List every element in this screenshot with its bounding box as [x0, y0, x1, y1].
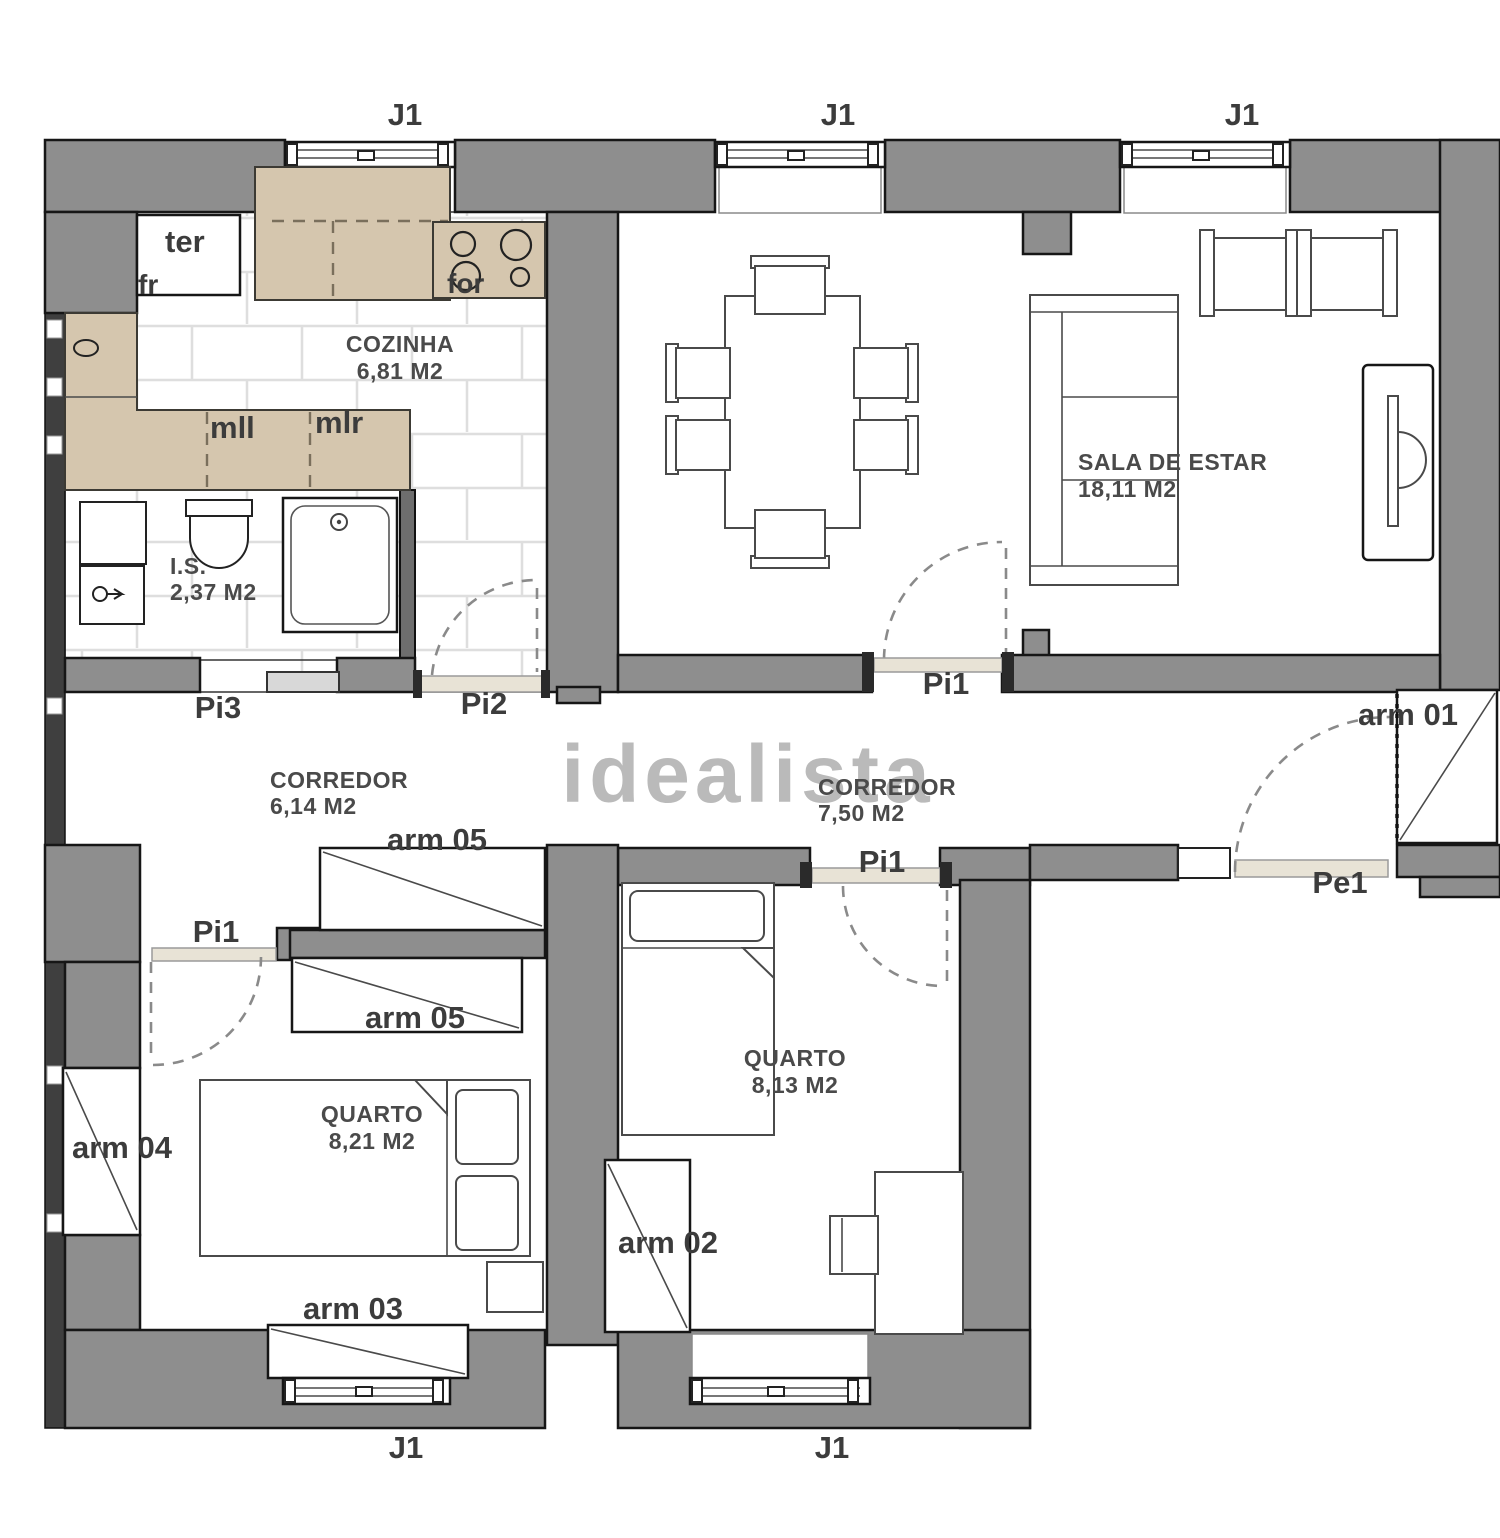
room-label-corridor-a: CORREDOR	[270, 767, 408, 793]
appliance-label-oven: for	[447, 268, 484, 299]
window-label-j1-top-right: J1	[1225, 97, 1259, 132]
appliance-label-dishwasher: mll	[210, 410, 255, 445]
sofa	[1030, 295, 1178, 585]
bedroom-b-door-swing	[843, 886, 947, 986]
window-top-right	[1120, 142, 1290, 213]
wardrobe-label-arm02: arm 02	[618, 1225, 718, 1260]
window-label-j1-bottom-middle: J1	[815, 1430, 849, 1465]
door-label-pi2: Pi2	[461, 686, 508, 721]
living-room: SALA DE ESTAR 18,11 M2	[666, 230, 1433, 692]
window-top-left	[285, 142, 455, 167]
bedroom-a-door-swing	[151, 957, 261, 1065]
door-label-pi1-living: Pi1	[923, 666, 970, 701]
room-area-living: 18,11 M2	[1078, 476, 1177, 502]
appliance-label-fridge: fr	[138, 269, 158, 300]
living-door-swing	[884, 542, 1006, 660]
wardrobe-label-arm01: arm 01	[1358, 697, 1458, 732]
entrance-door-swing	[1235, 717, 1390, 872]
window-bottom-left	[283, 1378, 450, 1404]
window-label-j1-top-middle: J1	[821, 97, 855, 132]
door-label-pi1-bedroom-a: Pi1	[193, 914, 240, 949]
appliance-label-water-heater: ter	[165, 224, 205, 259]
room-label-bathroom: I.S.	[170, 553, 207, 579]
room-area-corridor-b: 7,50 M2	[818, 800, 905, 826]
nightstand	[487, 1262, 543, 1312]
room-label-corridor-b: CORREDOR	[818, 774, 956, 800]
door-label-pi1-bedroom-b: Pi1	[859, 844, 906, 879]
room-label-bedroom-a: QUARTO	[321, 1101, 423, 1127]
door-label-pe1: Pe1	[1312, 865, 1367, 900]
washbasin-icon	[80, 502, 146, 624]
wardrobe-label-arm03: arm 03	[303, 1291, 403, 1326]
bedroom-b: QUARTO 8,13 M2	[605, 862, 963, 1334]
room-area-bedroom-b: 8,13 M2	[752, 1072, 839, 1098]
room-area-corridor-a: 6,14 M2	[270, 793, 357, 819]
bedroom-a-door-threshold	[152, 948, 276, 961]
wardrobe-label-arm05-bedroom: arm 05	[365, 1000, 465, 1035]
wardrobe-label-arm05-corridor: arm 05	[387, 822, 487, 857]
room-label-living: SALA DE ESTAR	[1078, 449, 1267, 475]
floor-plan: ter fr for mll mlr COZINHA 6,81 M2 I.S. …	[0, 0, 1500, 1538]
desk-chair	[830, 1216, 878, 1274]
wardrobe-arm03	[268, 1325, 468, 1378]
window-label-j1-bottom-left: J1	[389, 1430, 423, 1465]
room-label-kitchen: COZINHA	[346, 331, 454, 357]
wardrobe-label-arm04: arm 04	[72, 1130, 173, 1165]
door-label-pi3: Pi3	[195, 690, 242, 725]
floor-plan-svg: ter fr for mll mlr COZINHA 6,81 M2 I.S. …	[0, 0, 1500, 1538]
window-label-j1-top-left: J1	[388, 97, 422, 132]
armchair	[1297, 230, 1397, 316]
desk	[875, 1172, 963, 1334]
bathroom-door-leaf	[267, 672, 339, 692]
room-label-bedroom-b: QUARTO	[744, 1045, 846, 1071]
room-area-kitchen: 6,81 M2	[357, 358, 444, 384]
appliance-label-washer: mlr	[315, 405, 363, 440]
room-area-bedroom-a: 8,21 M2	[329, 1128, 416, 1154]
dining-table	[725, 296, 860, 528]
shower-icon	[283, 498, 397, 632]
armchair	[1200, 230, 1300, 316]
wardrobe-arm05-corridor	[320, 848, 545, 930]
kitchen-counter-top	[255, 167, 450, 300]
tv-cabinet	[1363, 365, 1433, 560]
room-area-bathroom: 2,37 M2	[170, 579, 257, 605]
window-bottom-middle	[690, 1334, 870, 1404]
window-top-middle	[715, 142, 885, 213]
